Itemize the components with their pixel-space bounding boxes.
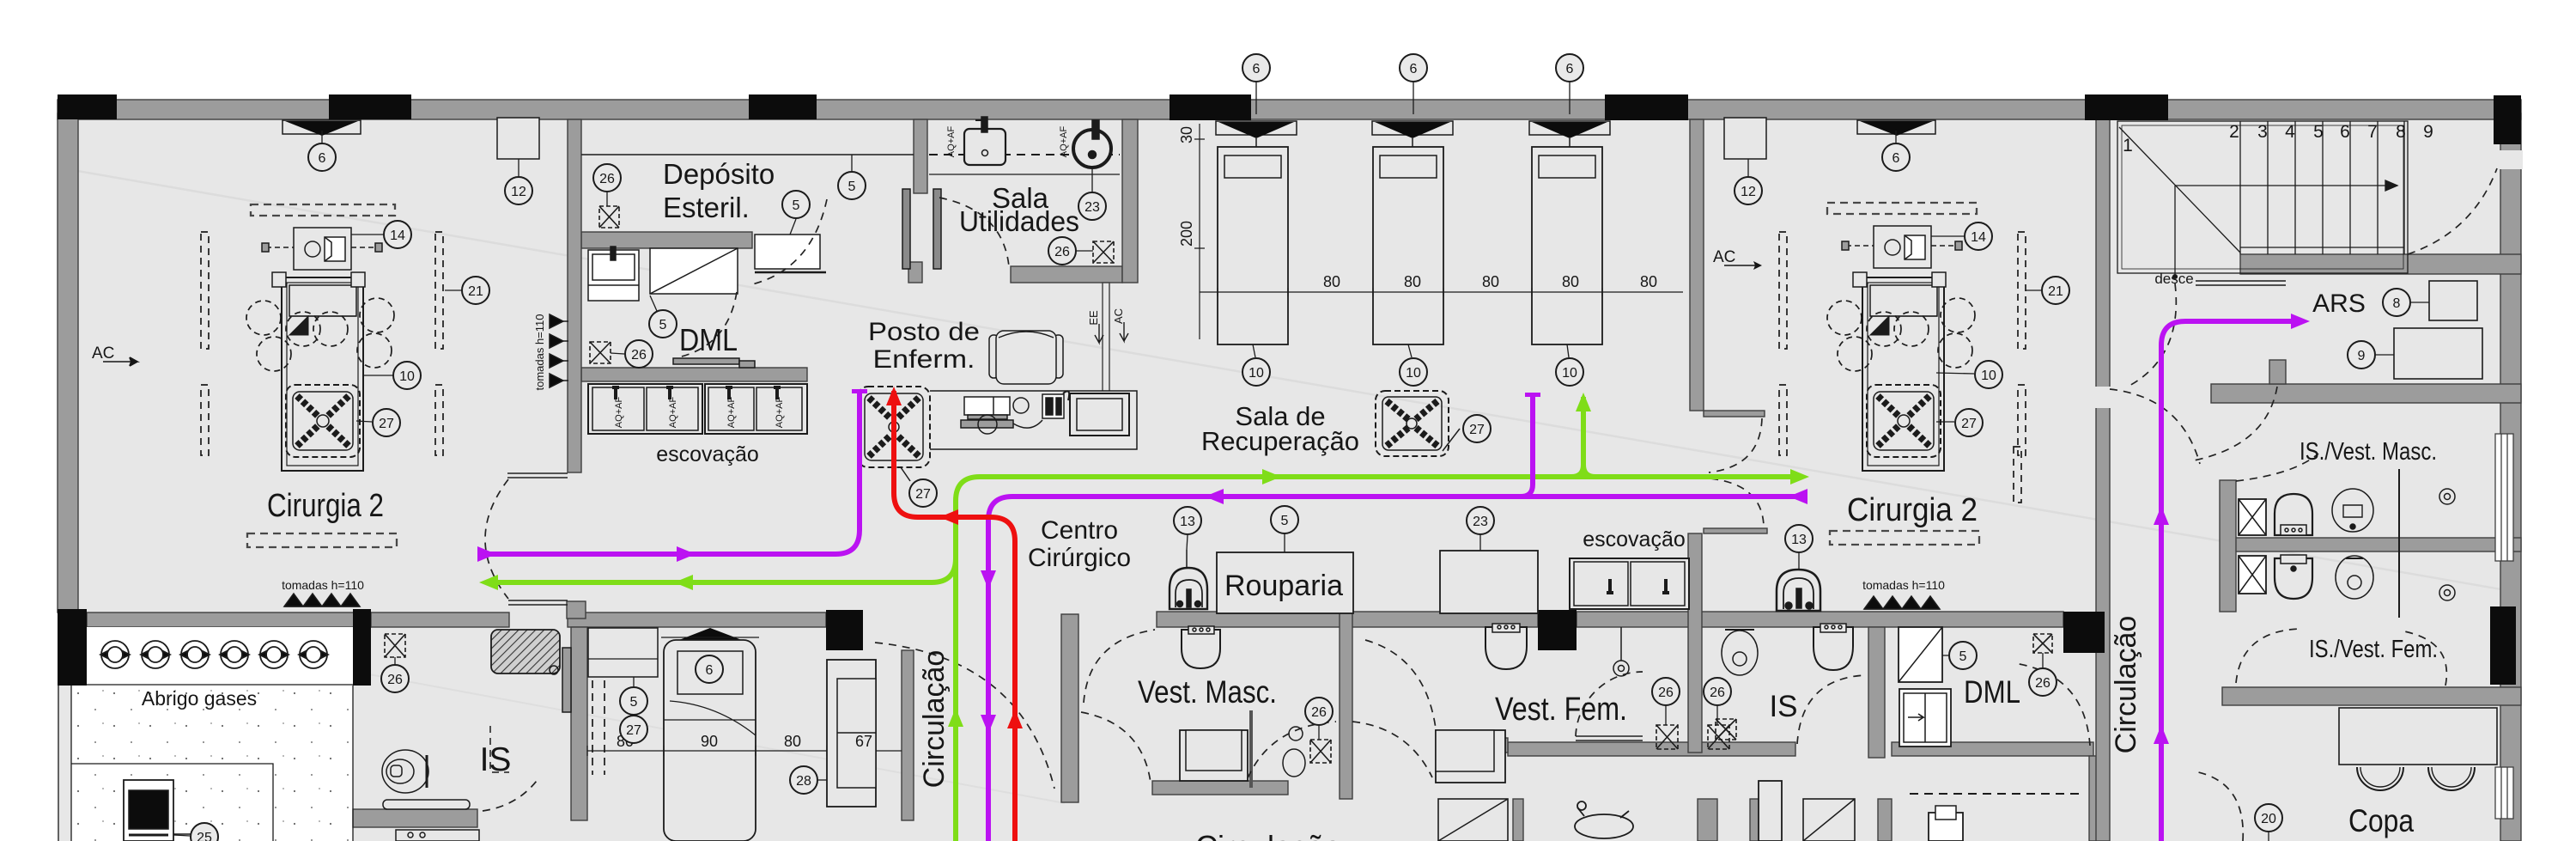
svg-text:DML: DML <box>1964 674 2020 710</box>
svg-text:desce: desce <box>2154 271 2193 287</box>
svg-text:Utilidades: Utilidades <box>959 205 1079 237</box>
svg-text:26: 26 <box>2035 676 2050 691</box>
svg-text:AQ+AF: AQ+AF <box>668 397 678 429</box>
svg-text:Circulação: Circulação <box>918 650 951 789</box>
svg-text:EE: EE <box>1087 310 1100 326</box>
svg-text:Centro: Centro <box>1041 516 1118 545</box>
svg-text:27: 27 <box>915 487 931 502</box>
svg-text:26: 26 <box>1311 705 1327 720</box>
svg-text:Cirurgia 2: Cirurgia 2 <box>267 488 384 524</box>
svg-text:8: 8 <box>2393 296 2401 311</box>
svg-text:30: 30 <box>1178 126 1195 143</box>
svg-text:8: 8 <box>2396 122 2406 142</box>
svg-text:26: 26 <box>1710 686 1725 700</box>
svg-text:10: 10 <box>1406 366 1421 381</box>
svg-text:Vest. Fem.: Vest. Fem. <box>1495 692 1627 728</box>
svg-text:26: 26 <box>631 348 647 363</box>
svg-text:Abrigo gases: Abrigo gases <box>142 687 257 710</box>
svg-text:27: 27 <box>1961 417 1977 431</box>
svg-text:10: 10 <box>399 369 415 384</box>
svg-text:26: 26 <box>1054 245 1070 259</box>
svg-text:12: 12 <box>1741 185 1756 199</box>
svg-text:escovação: escovação <box>1583 527 1686 552</box>
svg-text:Posto de: Posto de <box>868 318 980 346</box>
svg-text:1: 1 <box>2123 136 2133 155</box>
svg-text:28: 28 <box>796 774 811 789</box>
svg-text:tomadas h=110: tomadas h=110 <box>533 314 546 390</box>
svg-text:5: 5 <box>2313 122 2324 142</box>
svg-text:80: 80 <box>1482 273 1499 290</box>
svg-text:9: 9 <box>2358 349 2366 363</box>
svg-text:Esteril.: Esteril. <box>663 192 750 223</box>
svg-text:4: 4 <box>2285 122 2295 142</box>
svg-text:23: 23 <box>1084 200 1100 215</box>
svg-text:AQ+AF: AQ+AF <box>775 397 785 429</box>
svg-text:6: 6 <box>1253 62 1261 76</box>
svg-text:90: 90 <box>701 733 718 750</box>
svg-text:5: 5 <box>630 695 638 710</box>
svg-text:6: 6 <box>1893 151 1900 166</box>
svg-text:7: 7 <box>2367 122 2378 142</box>
svg-text:Recuperação: Recuperação <box>1201 426 1359 456</box>
svg-text:27: 27 <box>626 723 641 738</box>
svg-text:5: 5 <box>1281 514 1289 528</box>
svg-text:10: 10 <box>1562 366 1577 381</box>
svg-text:5: 5 <box>659 318 667 332</box>
svg-text:67: 67 <box>855 733 872 750</box>
svg-text:AQ+AF: AQ+AF <box>614 397 624 429</box>
svg-text:80: 80 <box>1323 273 1340 290</box>
svg-text:6: 6 <box>706 663 714 678</box>
svg-text:IS: IS <box>1769 690 1797 723</box>
svg-text:IS: IS <box>480 741 512 778</box>
svg-text:AQ+AF: AQ+AF <box>726 397 737 429</box>
svg-text:200: 200 <box>1178 221 1195 247</box>
svg-text:14: 14 <box>390 229 405 243</box>
svg-text:13: 13 <box>1791 533 1807 547</box>
svg-text:Copa: Copa <box>2348 803 2414 838</box>
svg-text:tomadas h=110: tomadas h=110 <box>1862 578 1945 592</box>
svg-text:3: 3 <box>2257 122 2268 142</box>
svg-text:25: 25 <box>197 831 212 841</box>
svg-text:Enferm.: Enferm. <box>873 345 975 374</box>
svg-text:IS./Vest. Masc.: IS./Vest. Masc. <box>2300 438 2437 466</box>
svg-text:27: 27 <box>379 417 394 431</box>
svg-text:tomadas h=110: tomadas h=110 <box>282 578 364 592</box>
svg-text:80: 80 <box>784 733 801 750</box>
svg-text:20: 20 <box>2261 812 2276 826</box>
svg-text:23: 23 <box>1473 515 1488 529</box>
svg-text:Circulação: Circulação <box>2110 616 2142 754</box>
svg-text:AQ+AF: AQ+AF <box>946 126 957 158</box>
svg-text:14: 14 <box>1971 230 1986 245</box>
svg-text:10: 10 <box>1981 369 1996 383</box>
svg-text:AC: AC <box>92 344 114 363</box>
svg-text:26: 26 <box>1658 686 1674 700</box>
svg-text:6: 6 <box>319 151 326 166</box>
svg-text:5: 5 <box>1959 649 1967 664</box>
svg-text:13: 13 <box>1180 515 1195 529</box>
svg-text:Depósito: Depósito <box>663 158 775 190</box>
svg-text:80: 80 <box>1562 273 1579 290</box>
svg-text:26: 26 <box>387 673 403 687</box>
svg-text:Cirúrgico: Cirúrgico <box>1028 544 1131 572</box>
svg-text:5: 5 <box>848 180 856 194</box>
svg-text:2: 2 <box>2229 122 2239 142</box>
svg-text:Circulação: Circulação <box>1195 829 1341 841</box>
svg-text:12: 12 <box>511 185 526 199</box>
svg-text:26: 26 <box>599 172 615 186</box>
svg-text:Rouparia: Rouparia <box>1224 570 1343 602</box>
svg-text:Cirurgia 2: Cirurgia 2 <box>1847 492 1978 528</box>
svg-text:AC: AC <box>1713 248 1735 266</box>
svg-text:5: 5 <box>793 198 800 213</box>
svg-text:21: 21 <box>2048 284 2063 299</box>
svg-text:9: 9 <box>2423 122 2433 142</box>
svg-text:AC: AC <box>1112 308 1125 324</box>
svg-text:IS./Vest. Fem.: IS./Vest. Fem. <box>2309 636 2438 663</box>
svg-text:10: 10 <box>1249 366 1264 381</box>
svg-text:80: 80 <box>1640 273 1657 290</box>
svg-text:DML: DML <box>679 322 738 357</box>
svg-text:6: 6 <box>1566 62 1574 76</box>
svg-text:ARS: ARS <box>2312 289 2366 318</box>
svg-text:AQ+AF: AQ+AF <box>1059 126 1069 158</box>
svg-text:Vest. Masc.: Vest. Masc. <box>1138 674 1277 710</box>
svg-text:27: 27 <box>1469 423 1485 437</box>
svg-text:escovação: escovação <box>656 442 759 466</box>
svg-text:80: 80 <box>1404 273 1421 290</box>
svg-text:21: 21 <box>468 284 483 299</box>
svg-text:6: 6 <box>2340 122 2350 142</box>
svg-text:6: 6 <box>1410 62 1418 76</box>
